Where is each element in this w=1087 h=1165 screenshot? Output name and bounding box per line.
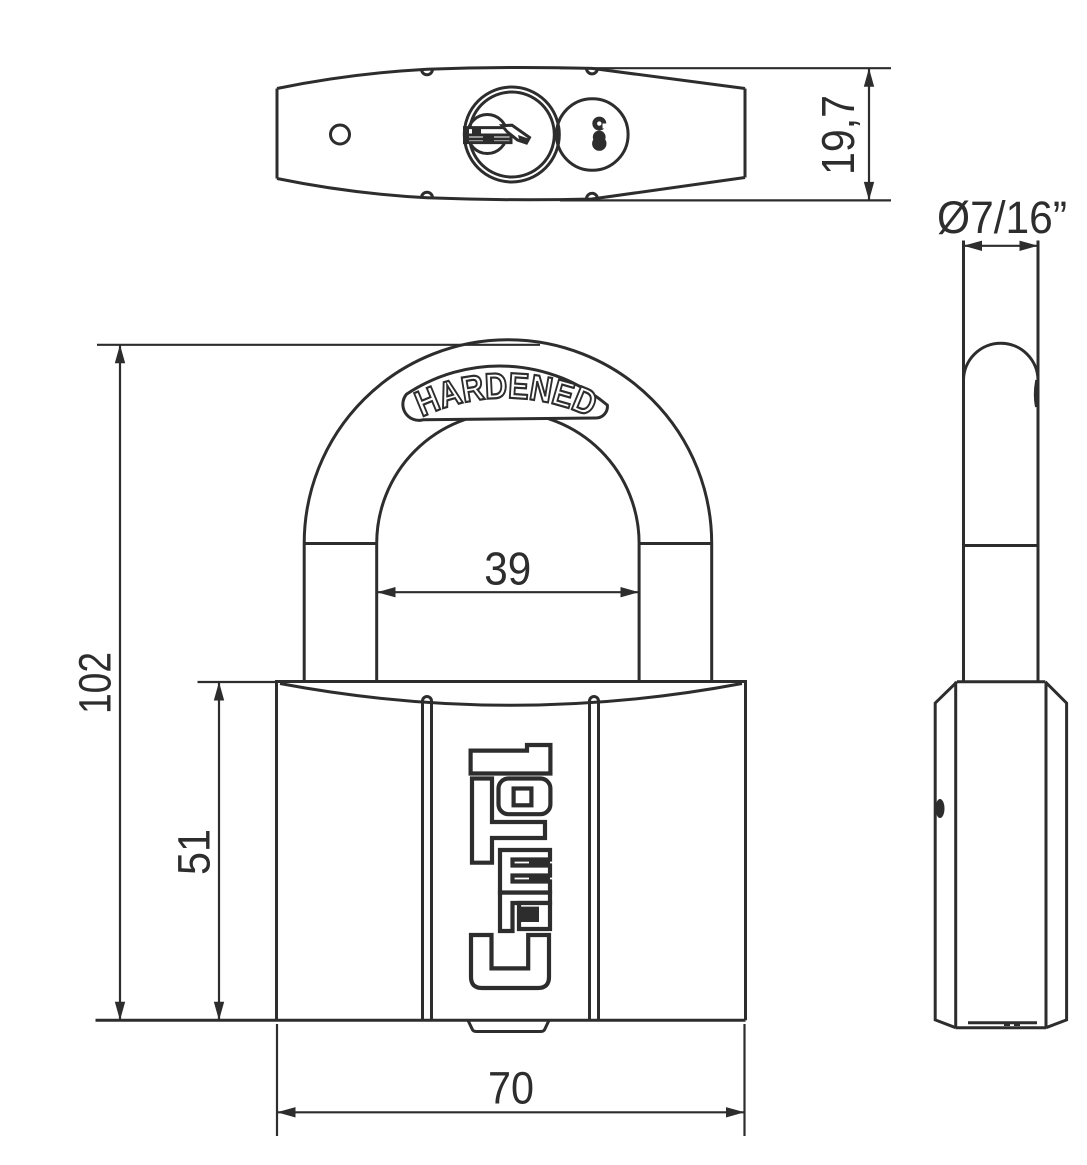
svg-text:51: 51 xyxy=(169,829,220,875)
svg-text:102: 102 xyxy=(70,652,121,714)
svg-text:70: 70 xyxy=(488,1063,534,1114)
svg-text:Ø7/16”: Ø7/16” xyxy=(937,192,1067,243)
svg-text:39: 39 xyxy=(484,543,531,595)
svg-text:19,7: 19,7 xyxy=(812,95,864,175)
